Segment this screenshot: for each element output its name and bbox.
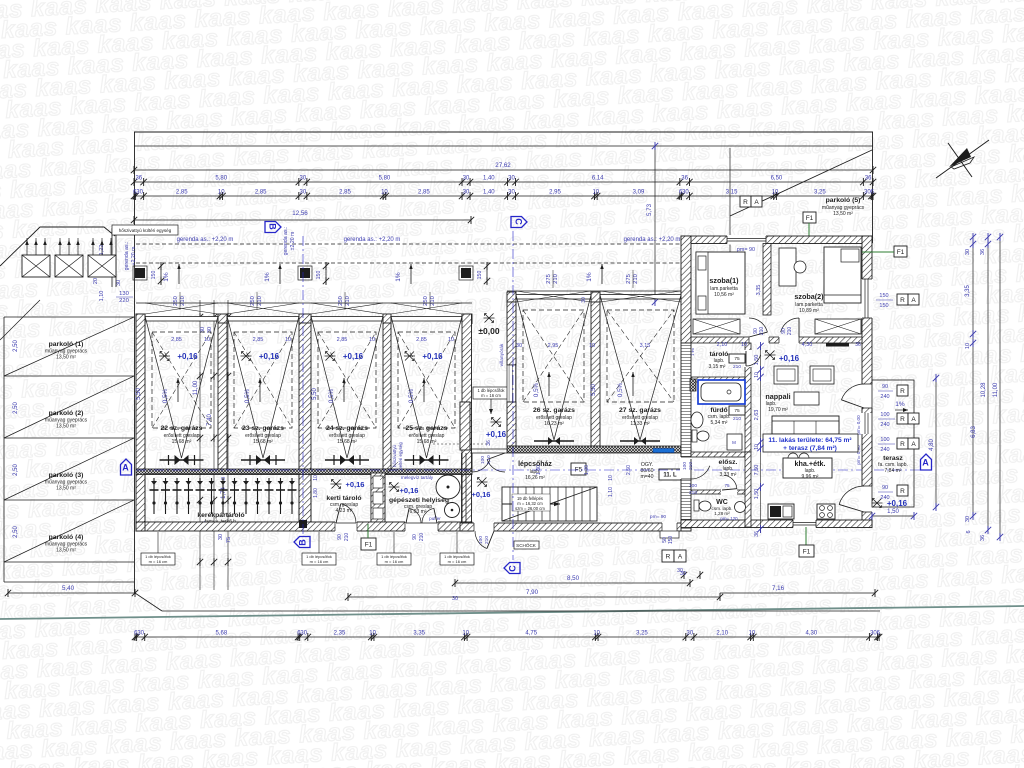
svg-text:210: 210: [344, 533, 350, 542]
svg-text:±0,00: ±0,00: [478, 326, 499, 336]
svg-text:13,50 m²: 13,50 m²: [56, 355, 76, 361]
svg-text:150: 150: [879, 293, 888, 299]
svg-text:fürdő: fürdő: [710, 407, 727, 414]
svg-text:R: R: [900, 388, 905, 395]
svg-text:19,70 m²: 19,70 m²: [768, 407, 788, 413]
svg-text:R: R: [900, 297, 905, 304]
svg-text:szoba(2): szoba(2): [794, 292, 824, 301]
svg-text:A: A: [911, 416, 916, 423]
svg-text:+ terasz (7,84 m²): + terasz (7,84 m²): [783, 445, 837, 452]
svg-text:2,85: 2,85: [337, 337, 348, 343]
svg-text:+0,16: +0,16: [422, 352, 443, 361]
svg-text:1%: 1%: [163, 272, 170, 282]
svg-text:+0,16: +0,16: [177, 352, 198, 361]
svg-text:2,85: 2,85: [171, 337, 182, 343]
svg-text:30: 30: [452, 596, 458, 602]
svg-text:210: 210: [759, 327, 765, 336]
svg-text:10: 10: [592, 190, 599, 196]
svg-text:R: R: [666, 553, 671, 560]
svg-text:7,50: 7,50: [754, 465, 760, 476]
svg-text:10: 10: [965, 343, 971, 349]
svg-text:2,50: 2,50: [13, 402, 19, 414]
svg-text:30: 30: [687, 631, 694, 637]
svg-text:30: 30: [300, 631, 307, 637]
svg-text:10: 10: [285, 337, 291, 343]
svg-text:30: 30: [965, 249, 971, 255]
svg-text:210: 210: [733, 416, 741, 422]
svg-text:melegvíz tartály: melegvíz tartály: [401, 475, 434, 480]
svg-text:75: 75: [724, 483, 730, 488]
svg-text:210: 210: [633, 274, 639, 284]
svg-text:parkoló (5): parkoló (5): [826, 197, 861, 204]
svg-text:2,35: 2,35: [334, 631, 346, 637]
svg-text:11. L: 11. L: [663, 473, 677, 479]
svg-text:10: 10: [448, 337, 454, 343]
svg-text:10: 10: [204, 337, 210, 343]
svg-text:5,73: 5,73: [646, 203, 653, 216]
svg-text:13,50 m²: 13,50 m²: [833, 211, 853, 217]
svg-text:250: 250: [338, 296, 344, 306]
svg-text:30: 30: [116, 280, 122, 286]
svg-text:4,80: 4,80: [929, 439, 935, 451]
svg-text:15,68 m²: 15,68 m²: [172, 439, 192, 445]
svg-text:2,10: 2,10: [716, 631, 728, 637]
svg-text:75: 75: [734, 356, 740, 362]
svg-text:hőszivattyú kültéri egység: hőszivattyú kültéri egység: [119, 228, 172, 233]
svg-text:kerékpártároló: kerékpártároló: [197, 512, 244, 519]
svg-text:m = 16 cm: m = 16 cm: [448, 559, 467, 564]
svg-text:30: 30: [581, 297, 587, 303]
svg-text:11,00: 11,00: [993, 382, 999, 397]
svg-text:10,89 m²: 10,89 m²: [799, 308, 819, 314]
svg-text:6: 6: [966, 530, 972, 533]
svg-text:240: 240: [880, 422, 889, 428]
svg-text:36: 36: [865, 176, 872, 182]
svg-text:3,35: 3,35: [965, 285, 971, 297]
svg-text:R: R: [900, 441, 905, 448]
svg-text:10: 10: [369, 631, 376, 637]
svg-text:30: 30: [682, 190, 689, 196]
svg-text:C: C: [507, 565, 517, 572]
svg-text:250: 250: [423, 296, 429, 306]
svg-text:szm = 26,00 cm: szm = 26,00 cm: [515, 506, 545, 511]
svg-text:+0,16: +0,16: [472, 490, 491, 499]
svg-text:100: 100: [478, 536, 484, 544]
svg-text:gerenda as.:: gerenda as.:: [283, 227, 289, 256]
svg-text:3,15 m²: 3,15 m²: [709, 364, 726, 370]
svg-text:gerenda as.:: gerenda as.:: [124, 242, 130, 271]
svg-text:pm= 120: pm= 120: [720, 516, 738, 521]
svg-text:nappali: nappali: [765, 392, 790, 401]
svg-text:6,50: 6,50: [771, 176, 783, 182]
svg-text:2,85: 2,85: [253, 337, 264, 343]
svg-text:szoba(1): szoba(1): [709, 276, 739, 285]
svg-text:m = 16 cm: m = 16 cm: [385, 559, 404, 564]
svg-text:210: 210: [257, 296, 263, 306]
svg-text:+0,16: +0,16: [887, 499, 908, 508]
svg-text:tároló: tároló: [710, 351, 729, 358]
svg-text:10: 10: [749, 631, 756, 637]
svg-text:gerenda as.: +2,20 m: gerenda as.: +2,20 m: [177, 237, 234, 243]
svg-text:F1: F1: [897, 249, 905, 256]
svg-text:2,85: 2,85: [418, 190, 430, 196]
svg-text:C: C: [514, 218, 524, 225]
svg-text:4,75: 4,75: [525, 631, 537, 637]
svg-text:10: 10: [754, 444, 760, 450]
svg-text:90: 90: [882, 384, 888, 390]
svg-text:1%: 1%: [395, 272, 402, 282]
svg-text:75: 75: [734, 408, 740, 414]
svg-text:elősz.: elősz.: [719, 459, 738, 466]
svg-text:210: 210: [787, 327, 793, 336]
svg-text:1,50: 1,50: [754, 489, 760, 500]
svg-text:10,56 m²: 10,56 m²: [714, 292, 734, 298]
svg-text:R: R: [743, 199, 748, 206]
svg-text:30: 30: [136, 190, 143, 196]
svg-text:100: 100: [880, 437, 889, 443]
svg-text:2,10: 2,10: [486, 455, 492, 465]
svg-text:20: 20: [93, 278, 99, 284]
svg-text:13,50 m²: 13,50 m²: [56, 424, 76, 430]
svg-text:15,68 m²: 15,68 m²: [253, 439, 273, 445]
svg-text:F1: F1: [806, 215, 814, 222]
svg-text:0,5%: 0,5%: [408, 388, 415, 403]
svg-text:36: 36: [754, 531, 760, 537]
svg-text:7,84 m²: 7,84 m²: [885, 468, 902, 474]
svg-text:250: 250: [250, 296, 256, 306]
svg-text:220: 220: [119, 298, 129, 304]
svg-text:A: A: [911, 441, 916, 448]
svg-text:+0,16: +0,16: [486, 430, 507, 439]
svg-text:3,25: 3,25: [636, 631, 648, 637]
svg-text:pm= 0,00: pm= 0,00: [856, 415, 861, 435]
svg-text:A: A: [678, 553, 683, 560]
svg-text:m=40: m=40: [640, 474, 653, 480]
svg-text:2,63: 2,63: [754, 410, 760, 421]
svg-text:10: 10: [381, 190, 388, 196]
svg-text:0,5%: 0,5%: [533, 382, 540, 397]
svg-text:0,5%: 0,5%: [162, 388, 169, 403]
svg-text:100: 100: [480, 456, 486, 464]
svg-text:10: 10: [218, 190, 225, 196]
svg-text:0,5%: 0,5%: [244, 388, 251, 403]
svg-text:13,50 m²: 13,50 m²: [56, 486, 76, 492]
svg-text:R: R: [900, 416, 905, 423]
svg-text:75: 75: [226, 537, 232, 543]
svg-text:130: 130: [119, 291, 129, 297]
svg-text:4,30: 4,30: [802, 342, 813, 348]
svg-text:B: B: [268, 223, 278, 230]
svg-text:M: M: [732, 440, 736, 445]
svg-text:100: 100: [689, 483, 697, 489]
svg-text:F1: F1: [365, 541, 373, 548]
svg-text:210: 210: [688, 462, 694, 470]
svg-text:1,74: 1,74: [221, 487, 227, 499]
svg-text:240: 240: [880, 394, 889, 400]
svg-text:30: 30: [680, 571, 686, 577]
svg-text:15,68 m²: 15,68 m²: [337, 439, 357, 445]
svg-text:gerenda as.: +2,20 m: gerenda as.: +2,20 m: [344, 237, 401, 243]
svg-text:210: 210: [733, 364, 741, 370]
svg-text:25 sz. garázs: 25 sz. garázs: [406, 425, 448, 432]
svg-text:parkoló (4): parkoló (4): [49, 534, 84, 541]
svg-text:36: 36: [681, 176, 688, 182]
svg-text:26 sz. garázs: 26 sz. garázs: [533, 407, 575, 414]
svg-text:27,62: 27,62: [495, 162, 511, 169]
svg-text:2,10: 2,10: [717, 342, 728, 348]
svg-text:5,68: 5,68: [216, 631, 228, 637]
svg-text:1 fm: 1 fm: [690, 347, 695, 355]
svg-text:23 sz. garázs: 23 sz. garázs: [242, 425, 284, 432]
svg-text:36: 36: [855, 342, 861, 348]
svg-text:90: 90: [337, 534, 343, 540]
svg-text:22 sz. garázs: 22 sz. garázs: [161, 425, 203, 432]
svg-text:30: 30: [463, 190, 470, 196]
svg-text:2,95: 2,95: [548, 343, 559, 349]
svg-text:30: 30: [299, 176, 306, 182]
svg-text:parkoló (2): parkoló (2): [49, 410, 84, 417]
svg-text:3,25: 3,25: [814, 190, 826, 196]
svg-text:36: 36: [980, 249, 986, 255]
svg-text:30: 30: [218, 534, 224, 540]
svg-text:210: 210: [419, 533, 425, 542]
svg-text:30: 30: [508, 176, 515, 182]
svg-text:10: 10: [608, 475, 614, 481]
svg-text:9,96 m²: 9,96 m²: [802, 474, 819, 480]
svg-text:+2,20 m: +2,20 m: [131, 247, 137, 266]
svg-text:B: B: [297, 539, 307, 546]
svg-text:5,50: 5,50: [136, 388, 142, 400]
svg-text:10: 10: [593, 631, 600, 637]
svg-text:5,80: 5,80: [379, 176, 391, 182]
svg-text:0,5%: 0,5%: [617, 382, 624, 397]
svg-text:beltéri egység: beltéri egység: [398, 442, 403, 470]
svg-text:27 sz. garázs: 27 sz. garázs: [619, 407, 661, 414]
svg-text:4,30: 4,30: [806, 631, 818, 637]
svg-text:210: 210: [345, 296, 351, 306]
svg-text:3,33 m²: 3,33 m²: [720, 472, 737, 478]
svg-text:1,10: 1,10: [99, 291, 105, 302]
svg-text:1,50: 1,50: [754, 355, 760, 366]
svg-text:10: 10: [589, 343, 595, 349]
svg-text:2,95: 2,95: [549, 190, 561, 196]
svg-text:36: 36: [135, 176, 142, 182]
svg-text:1%: 1%: [264, 272, 271, 282]
svg-text:240: 240: [880, 495, 889, 501]
svg-text:2,85: 2,85: [339, 190, 351, 196]
svg-text:+0,16: +0,16: [400, 486, 419, 495]
svg-text:6,83: 6,83: [971, 426, 977, 438]
svg-text:±2,20 m: ±2,20 m: [290, 232, 296, 251]
svg-text:275: 275: [546, 274, 552, 284]
svg-text:A: A: [911, 297, 916, 304]
svg-text:12,56: 12,56: [292, 210, 308, 217]
svg-text:kha.+étk.: kha.+étk.: [795, 459, 826, 468]
svg-text:30: 30: [299, 190, 306, 196]
svg-text:1,40: 1,40: [483, 190, 495, 196]
svg-text:90: 90: [412, 534, 418, 540]
svg-text:275: 275: [626, 274, 632, 284]
svg-text:2,50: 2,50: [13, 340, 19, 352]
svg-text:150: 150: [316, 271, 322, 280]
svg-text:10: 10: [462, 631, 469, 637]
svg-text:150: 150: [151, 271, 157, 280]
svg-text:A: A: [922, 457, 929, 467]
svg-text:36: 36: [486, 440, 492, 446]
svg-text:11,33 m²: 11,33 m²: [630, 421, 650, 427]
svg-text:+0,16: +0,16: [259, 352, 280, 361]
svg-text:5,40: 5,40: [62, 585, 75, 592]
svg-text:210: 210: [553, 274, 559, 284]
svg-text:10: 10: [313, 475, 319, 481]
svg-text:150: 150: [477, 271, 483, 280]
svg-text:11. lakás területe: 64,75 m²: 11. lakás területe: 64,75 m²: [768, 437, 852, 444]
svg-text:100: 100: [682, 462, 688, 470]
svg-text:1,80: 1,80: [313, 488, 319, 498]
svg-text:7,16: 7,16: [772, 585, 785, 592]
svg-text:5,80: 5,80: [215, 176, 227, 182]
svg-text:240: 240: [880, 447, 889, 453]
svg-text:1,50: 1,50: [887, 509, 899, 515]
svg-text:2,50: 2,50: [13, 464, 19, 476]
svg-text:gerenda as.: +2,20 m: gerenda as.: +2,20 m: [624, 237, 681, 243]
svg-text:m = 16 cm: m = 16 cm: [481, 393, 501, 398]
svg-text:30: 30: [137, 631, 144, 637]
svg-text:3,35: 3,35: [756, 285, 762, 296]
svg-text:F1: F1: [803, 548, 811, 555]
svg-text:2,85: 2,85: [176, 190, 188, 196]
svg-text:10: 10: [369, 337, 375, 343]
svg-text:150: 150: [668, 536, 674, 545]
svg-text:24 sz. garázs: 24 sz. garázs: [326, 425, 368, 432]
svg-text:7,40: 7,40: [207, 414, 213, 426]
svg-text:3,09: 3,09: [633, 190, 645, 196]
svg-text:36: 36: [980, 535, 986, 541]
svg-text:90: 90: [882, 485, 888, 491]
svg-text:250: 250: [173, 296, 179, 306]
svg-text:5,34 m²: 5,34 m²: [711, 420, 728, 426]
svg-text:210: 210: [689, 490, 697, 496]
svg-text:+0,16: +0,16: [779, 354, 800, 363]
svg-text:kerti tároló: kerti tároló: [326, 495, 361, 502]
svg-text:30: 30: [508, 190, 515, 196]
svg-text:pm= 90: pm= 90: [650, 514, 666, 520]
svg-text:SCHÖCK: SCHÖCK: [516, 542, 537, 548]
svg-text:WC: WC: [716, 499, 728, 506]
svg-text:parkoló (3): parkoló (3): [49, 472, 84, 479]
svg-text:0,5%: 0,5%: [328, 388, 335, 403]
svg-text:1%: 1%: [895, 401, 905, 408]
svg-text:10,28: 10,28: [981, 382, 987, 398]
svg-text:30: 30: [516, 343, 522, 349]
svg-text:terasz: terasz: [883, 455, 903, 462]
svg-text:3,15: 3,15: [726, 190, 738, 196]
svg-text:16,23 m²: 16,23 m²: [544, 421, 564, 427]
svg-text:2,85: 2,85: [255, 190, 267, 196]
svg-text:3,15: 3,15: [640, 343, 651, 349]
svg-text:m = 16 cm: m = 16 cm: [149, 559, 168, 564]
svg-text:10: 10: [741, 342, 747, 348]
svg-text:210: 210: [430, 296, 436, 306]
svg-text:210: 210: [484, 536, 490, 544]
svg-text:7,90: 7,90: [526, 589, 539, 596]
svg-text:8,50: 8,50: [567, 575, 580, 582]
svg-text:villanyórák: villanyórák: [499, 343, 505, 366]
svg-text:gépészeti helyiség: gépészeti helyiség: [389, 497, 449, 504]
svg-text:1%: 1%: [586, 272, 593, 282]
svg-text:100: 100: [880, 412, 889, 418]
svg-text:A: A: [754, 199, 759, 206]
svg-text:A: A: [122, 462, 129, 472]
svg-text:6,14: 6,14: [592, 176, 604, 182]
svg-text:150: 150: [879, 303, 888, 309]
svg-text:5,50: 5,50: [591, 384, 597, 396]
svg-text:1,40: 1,40: [483, 176, 495, 182]
svg-text:30: 30: [463, 176, 470, 182]
svg-text:parkoló (1): parkoló (1): [49, 341, 84, 348]
svg-text:+0,16: +0,16: [346, 480, 365, 489]
svg-text:R: R: [900, 488, 905, 495]
svg-text:3,35: 3,35: [413, 631, 425, 637]
svg-text:30: 30: [965, 516, 971, 522]
svg-text:2,85: 2,85: [416, 337, 427, 343]
svg-text:2,50: 2,50: [13, 526, 19, 538]
svg-text:13,50 m²: 13,50 m²: [56, 548, 76, 554]
svg-text:210: 210: [180, 296, 186, 306]
svg-text:10: 10: [754, 372, 760, 378]
svg-text:+0,16: +0,16: [343, 352, 364, 361]
svg-text:5,50: 5,50: [312, 388, 318, 400]
svg-text:m = 16 cm: m = 16 cm: [310, 559, 329, 564]
svg-text:1,10: 1,10: [608, 487, 614, 497]
